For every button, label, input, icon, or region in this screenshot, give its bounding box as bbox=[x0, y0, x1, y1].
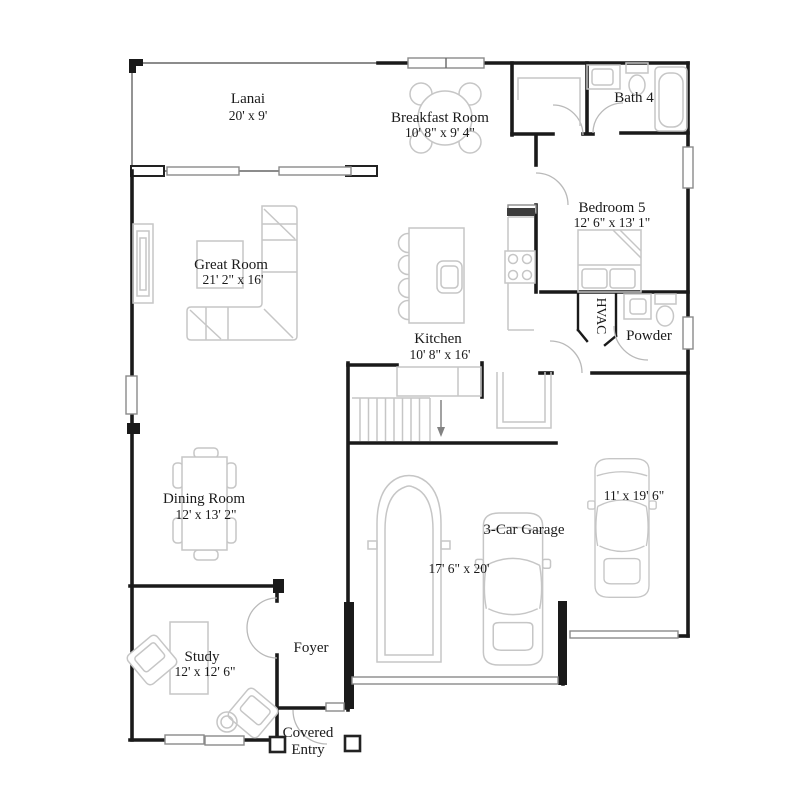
walk-in-pantry bbox=[518, 78, 580, 126]
window bbox=[165, 735, 204, 744]
garage-door-main bbox=[352, 677, 558, 684]
label-powder: Powder bbox=[626, 328, 672, 344]
study-door-arc bbox=[247, 598, 277, 628]
label-kitchen-dims: 10' 8" x 16' bbox=[409, 347, 470, 362]
room-study bbox=[125, 622, 280, 740]
label-garage-name: 3-Car Garage bbox=[483, 522, 565, 538]
car bbox=[588, 459, 656, 598]
garage-door-jamb bbox=[558, 601, 567, 685]
label-garage-dims-main: 17' 6" x 20' bbox=[428, 561, 489, 576]
front-door-leaf bbox=[326, 703, 344, 711]
wall-stub bbox=[273, 579, 284, 593]
garage-door-bay bbox=[570, 631, 678, 638]
label-great-name: Great Room bbox=[194, 257, 268, 273]
room-powder bbox=[624, 294, 676, 326]
sliding-door-panel bbox=[167, 167, 239, 175]
toilet bbox=[655, 294, 676, 304]
stairs bbox=[352, 398, 445, 441]
armchair bbox=[226, 686, 280, 740]
study-door-arc bbox=[247, 628, 277, 658]
label-study-name: Study bbox=[184, 649, 220, 665]
label-lanai-dims: 20' x 9' bbox=[229, 108, 268, 123]
label-hvac: HVAC bbox=[594, 298, 609, 335]
room-bedroom5 bbox=[578, 230, 641, 292]
label-lanai-name: Lanai bbox=[231, 91, 265, 107]
bedroom-door-arc bbox=[536, 173, 568, 205]
label-dining-dims: 12' x 13' 2" bbox=[175, 507, 236, 522]
garage-door-jamb bbox=[344, 602, 354, 709]
label-breakfast-name: Breakfast Room bbox=[391, 110, 489, 126]
sliding-door-panel bbox=[279, 167, 351, 175]
corner-pillar bbox=[129, 59, 143, 73]
pantry-door-arc bbox=[553, 105, 583, 135]
label-kitchen-name: Kitchen bbox=[414, 331, 462, 347]
lower-counter bbox=[397, 367, 481, 396]
bath-door-arc bbox=[593, 103, 623, 133]
garage-entry-door-arc bbox=[550, 341, 582, 373]
label-covered-line2: Entry bbox=[291, 742, 325, 758]
wall-stub bbox=[127, 423, 140, 434]
entry-pillar bbox=[345, 736, 360, 751]
window bbox=[205, 736, 244, 745]
powder-sink bbox=[624, 294, 651, 319]
label-bath4-name: Bath 4 bbox=[614, 90, 654, 106]
label-study-dims: 12' x 12' 6" bbox=[174, 664, 235, 679]
floor-plan: Lanai 20' x 9' Breakfast Room 10' 8" x 9… bbox=[0, 0, 800, 800]
pillow bbox=[610, 269, 635, 288]
label-dining-name: Dining Room bbox=[163, 491, 245, 507]
label-breakfast-dims: 10' 8" x 9' 4" bbox=[405, 125, 475, 140]
pillow bbox=[582, 269, 607, 288]
label-garage-dims-bay: 11' x 19' 6" bbox=[604, 488, 665, 503]
chair bbox=[194, 550, 218, 560]
window bbox=[683, 317, 693, 349]
label-covered-line1: Covered bbox=[283, 725, 334, 741]
window bbox=[683, 147, 693, 188]
label-bedroom5-dims: 12' 6" x 13' 1" bbox=[574, 215, 651, 230]
pantry-closet bbox=[497, 372, 551, 428]
label-bedroom5-name: Bedroom 5 bbox=[578, 200, 645, 216]
built-in-cabinet bbox=[507, 208, 535, 216]
label-great-dims: 21' 2" x 16' bbox=[202, 272, 263, 287]
window bbox=[126, 376, 137, 414]
room-kitchen bbox=[397, 208, 551, 428]
label-foyer: Foyer bbox=[294, 640, 329, 656]
slider-end-cap bbox=[131, 166, 164, 176]
fireplace bbox=[133, 224, 153, 303]
